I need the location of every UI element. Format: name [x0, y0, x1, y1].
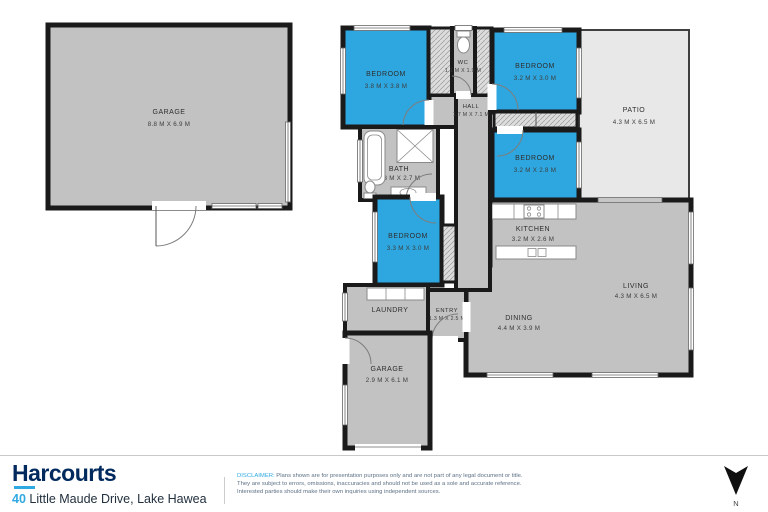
- property-address: 40 Little Maude Drive, Lake Hawea: [12, 492, 207, 506]
- svg-text:3.2 M X 2.8 M: 3.2 M X 2.8 M: [514, 167, 556, 174]
- footer: Harcourts 40 Little Maude Drive, Lake Ha…: [0, 455, 768, 512]
- disclaimer: DISCLAIMER: Plans shown are for presenta…: [237, 472, 530, 496]
- room-wc: WC 1.1 M X 1.9 M: [445, 26, 481, 100]
- svg-text:BATH: BATH: [389, 166, 409, 173]
- door-opening: [152, 201, 206, 210]
- disclaimer-label: DISCLAIMER:: [237, 473, 275, 479]
- room-bedroom-2: BEDROOM 3.2 M X 3.0 M: [488, 28, 582, 113]
- svg-text:3.2 M X 2.6 M: 3.2 M X 2.6 M: [512, 236, 554, 243]
- door-opening: [456, 91, 471, 99]
- svg-text:1.7 M X 7.1 M: 1.7 M X 7.1 M: [453, 112, 489, 118]
- disclaimer-text: Plans shown are for presentation purpose…: [237, 473, 523, 495]
- room-bath: BATH 3.3 M X 2.7 M: [358, 127, 439, 204]
- svg-text:BEDROOM: BEDROOM: [515, 63, 555, 70]
- svg-text:3.2 M X 3.0 M: 3.2 M X 3.0 M: [514, 75, 556, 82]
- svg-text:4.4 M X 3.9 M: 4.4 M X 3.9 M: [498, 325, 540, 332]
- svg-text:WC: WC: [458, 60, 469, 66]
- svg-text:BEDROOM: BEDROOM: [366, 71, 406, 78]
- svg-text:4.3 M X 6.5 M: 4.3 M X 6.5 M: [615, 293, 657, 300]
- room-garage-2: GARAGE 2.9 M X 6.1 M: [341, 333, 431, 452]
- room-bedroom-4: BEDROOM 3.3 M X 3.0 M: [373, 193, 443, 285]
- svg-text:3.8 M X 3.8 M: 3.8 M X 3.8 M: [365, 83, 407, 90]
- wardrobe: [429, 28, 452, 95]
- room-garage-main: GARAGE 8.8 M X 6.9 M: [48, 25, 291, 246]
- svg-text:PATIO: PATIO: [623, 107, 646, 114]
- door-opening: [497, 126, 523, 134]
- sliding-door: [598, 198, 662, 203]
- room-open-plan: KITCHEN 3.2 M X 2.6 M LIVING 4.3 M X 6.5…: [466, 198, 694, 378]
- floorplan-page: PATIO 4.3 M X 6.5 M GARAGE 8.8 M X 6.9 M…: [0, 0, 768, 512]
- address-text: Little Maude Drive, Lake Hawea: [29, 492, 206, 506]
- door-opening: [463, 302, 471, 332]
- harcourts-logo: Harcourts: [12, 461, 207, 485]
- address-number: 40: [12, 492, 26, 506]
- room-bedroom-3: BEDROOM 3.2 M X 2.8 M: [492, 126, 582, 200]
- logo-underline: [14, 486, 35, 489]
- door-arc: [156, 206, 196, 246]
- svg-text:4.3 M X 6.5 M: 4.3 M X 6.5 M: [613, 119, 655, 126]
- toilet: [365, 181, 375, 193]
- north-arrow-icon: [724, 466, 748, 495]
- svg-text:ENTRY: ENTRY: [436, 308, 458, 314]
- svg-text:GARAGE: GARAGE: [153, 109, 186, 116]
- wardrobe: [442, 225, 456, 282]
- room-entry: ENTRY 1.3 M X 2.5 M: [428, 290, 471, 344]
- svg-text:KITCHEN: KITCHEN: [516, 226, 550, 233]
- svg-text:DINING: DINING: [505, 315, 533, 322]
- door-opening: [410, 193, 436, 201]
- compass-label: N: [733, 499, 738, 508]
- svg-text:LIVING: LIVING: [623, 283, 649, 290]
- garage-door-opening: [355, 444, 421, 452]
- svg-text:8.8 M X 6.9 M: 8.8 M X 6.9 M: [148, 121, 190, 128]
- door-opening: [341, 338, 350, 364]
- laundry-counter: [367, 288, 424, 300]
- compass: N: [720, 460, 752, 510]
- svg-text:BEDROOM: BEDROOM: [515, 155, 555, 162]
- toilet: [457, 31, 470, 37]
- toilet: [458, 37, 470, 53]
- footer-divider: [224, 477, 225, 504]
- svg-text:1.1 M X 1.9 M: 1.1 M X 1.9 M: [445, 68, 481, 74]
- door-opening: [432, 336, 458, 344]
- svg-text:LAUNDRY: LAUNDRY: [372, 307, 409, 314]
- svg-text:2.9 M X 6.1 M: 2.9 M X 6.1 M: [366, 377, 408, 384]
- door-opening: [488, 84, 497, 110]
- svg-text:HALL: HALL: [463, 104, 480, 110]
- svg-text:3.3 M X 3.0 M: 3.3 M X 3.0 M: [387, 245, 429, 252]
- window: [455, 26, 472, 31]
- brand-block: Harcourts 40 Little Maude Drive, Lake Ha…: [12, 461, 207, 506]
- room-laundry: LAUNDRY: [343, 285, 429, 333]
- room-patio: PATIO 4.3 M X 6.5 M: [579, 30, 689, 200]
- floor-plan: PATIO 4.3 M X 6.5 M GARAGE 8.8 M X 6.9 M…: [0, 0, 768, 455]
- door-opening: [425, 100, 434, 126]
- stove: [524, 205, 544, 218]
- svg-text:BEDROOM: BEDROOM: [388, 233, 428, 240]
- room-bedroom-1: BEDROOM 3.8 M X 3.8 M: [341, 26, 434, 128]
- svg-text:GARAGE: GARAGE: [371, 366, 404, 373]
